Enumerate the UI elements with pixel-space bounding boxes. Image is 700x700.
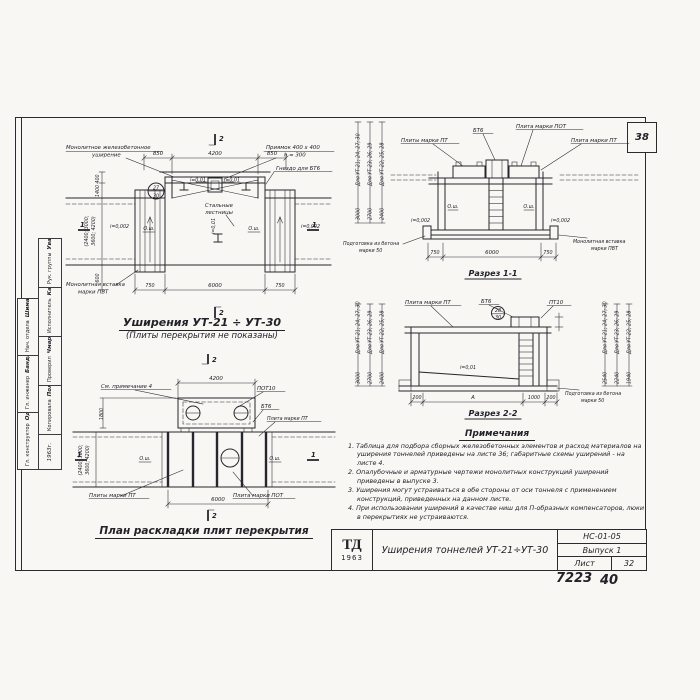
- plan-dim-left-4: 3600; 4200): [91, 216, 97, 246]
- s1-label-slope-left: i=0,002: [411, 218, 430, 224]
- lp-dim-left-mid-2: 3600; 4200): [85, 445, 91, 475]
- s2-leftdim-label-3: Для УТ-22; 25; 28: [380, 311, 386, 355]
- s1-label-pt-left: Плиты марки ПТ: [401, 138, 448, 144]
- lp-dim-left-top: 1800: [99, 408, 105, 420]
- note-item: 2. Опалубочные и арматурные чертежи моно…: [348, 468, 646, 485]
- s1-label-insert-2: марки ПВТ: [591, 246, 619, 252]
- s2-marker-top: 28: [495, 308, 501, 314]
- lp-label-pt: Плита марки ПТ: [267, 416, 309, 422]
- lp-label-bt6: БТ6: [261, 404, 272, 410]
- s2-leftdim-val-1: 3000: [356, 372, 362, 384]
- s1-label-bt6: БТ6: [473, 128, 484, 134]
- s2-title: Разрез 2-2: [469, 409, 518, 418]
- plan-marker-bottom: 30: [153, 194, 159, 200]
- lp-label-see-note: См. примечание 4: [101, 384, 153, 390]
- plan-dim-left-2: 1400: [95, 185, 101, 197]
- section2-texts: Для УТ-21; 24; 27; 30 Для УТ-23; 26; 29 …: [356, 299, 633, 418]
- plan-label-axis-right: О.ш.: [248, 226, 259, 232]
- title-block-right: НС-01-05 Выпуск 1 Лист 32: [558, 530, 646, 570]
- plan-label-ladders-2: лестницы: [204, 210, 234, 216]
- signature-year: 1963г.: [39, 435, 61, 469]
- plan-texts: 850 4200 850 750 6000 750 400 1400 (2400…: [66, 135, 321, 317]
- plan-dim-left-3: (2400; 3000;: [84, 215, 90, 246]
- s1-dim-bot-right: 750: [543, 250, 552, 256]
- signature-row: Проверил Чмарин: [39, 337, 61, 386]
- s2-leftdim-label-2: Для УТ-23; 26; 29: [368, 311, 374, 355]
- plan-label-socket: Гнездо для БТ6: [276, 166, 321, 172]
- s2-rightdim-label-2: Для УТ-23; 26; 29: [615, 311, 621, 355]
- plan-label-slope-pit-right: i=0,01: [224, 178, 240, 184]
- signature-strip-outer: Гл. конструктор Одобнистый Гл. инженер Б…: [17, 298, 39, 470]
- s2-rightdim-val-1: 2540: [603, 372, 609, 384]
- s2-rightdim-val-2: 2240: [615, 372, 621, 384]
- plan-drawing: 850 4200 850 750 6000 750 400 1400 (2400…: [66, 122, 338, 347]
- s2-label-bt6: БТ6: [481, 299, 492, 305]
- sheet-word: Лист: [558, 557, 612, 570]
- issue-label: Выпуск 1: [558, 544, 646, 558]
- plan-label-insert-2: марки ПВТ: [78, 290, 109, 296]
- lp-label-pt-plural: Плиты марки ПТ: [89, 493, 136, 499]
- s2-leftdim-val-3: 2400: [380, 372, 386, 384]
- layout-plan-drawing: 2 4200 См. примечание 4 ПОТ10 БТ6 Плита …: [63, 352, 345, 528]
- plan-title: Уширения УТ-21 ÷ УТ-30: [66, 316, 338, 329]
- plan-subtitle: (Плиты перекрытия не показаны): [66, 331, 338, 341]
- signature-row: Рук. группы Уваровский: [39, 239, 61, 288]
- s2-rightdim-label-1: Для УТ-21; 24; 27; 30: [603, 301, 609, 355]
- s1-label-prep-1: Подготовка из бетона: [343, 241, 399, 247]
- s2-rightdim-label-3: Для УТ-22; 25; 28: [627, 311, 633, 355]
- section-2-2-drawing: Для УТ-21; 24; 27; 30 Для УТ-23; 26; 29 …: [343, 296, 645, 424]
- plan-mark-1-left: 1: [80, 221, 85, 229]
- s2-dim-2: А: [470, 395, 475, 401]
- lp-label-axis-left: О.ш.: [139, 456, 150, 462]
- plan-label-monolithic-1: Монолитное железобетонное: [66, 145, 151, 151]
- signature-row: Исполнитель Каганюк: [39, 288, 61, 337]
- note-item: 1. Таблица для подбора сборных железобет…: [348, 442, 646, 467]
- layout-plan-title: План раскладки плит перекрытия: [63, 525, 345, 537]
- document-code: НС-01-05: [558, 530, 646, 544]
- s2-leftdim-label-1: Для УТ-21; 24; 27; 30: [356, 301, 362, 355]
- plan-mark-2-top: 2: [219, 135, 224, 143]
- plan-label-slope-left: i=0,002: [110, 224, 129, 230]
- s2-dim-3: 1000: [528, 395, 540, 401]
- sheet-row: Лист 32: [558, 557, 646, 570]
- plan-dim-bot-left: 750: [145, 283, 154, 289]
- signature-row: Нач. отдела Шиманвицкий: [18, 299, 38, 356]
- drawing-title: Уширения тоннелей УТ-21÷УТ-30: [373, 530, 558, 570]
- organization-logo: ТД 1963: [332, 530, 373, 570]
- s2-dim-1: 200: [412, 395, 421, 401]
- plan-label-pit-2: h = 300: [284, 153, 306, 159]
- s2-rightdim-val-3: 1940: [627, 372, 633, 384]
- s1-dim-bot-mid: 6000: [485, 250, 499, 256]
- lp-mark-bottom: 2: [212, 512, 217, 520]
- lp-dim-bottom: 6000: [211, 497, 225, 503]
- s1-label-insert-1: Монолитная вставка: [573, 239, 626, 245]
- s1-label-slope-right: i=0,002: [551, 218, 570, 224]
- s1-title: Разрез 1-1: [469, 269, 518, 278]
- plan-dim-left-1: 400: [95, 174, 101, 183]
- s1-leftdim-label-2: Для УТ-23; 26; 29: [368, 143, 374, 187]
- notes-block: Примечания 1. Таблица для подбора сборны…: [348, 429, 646, 522]
- plan-marker-top: 27: [153, 186, 159, 192]
- lp-label-pot10: ПОТ10: [257, 386, 276, 392]
- plan-label-slope-axis: i=0,01: [211, 218, 217, 234]
- lp-dim-left-mid-1: (2400; 3000;: [78, 444, 84, 475]
- lp-mark-1-left: 1: [77, 451, 82, 459]
- note-item: 3. Уширения могут устраиваться в обе сто…: [348, 486, 646, 503]
- s2-marker-bottom: 30: [495, 315, 501, 321]
- s2-label-prep-1: Подготовка из бетона: [565, 391, 621, 397]
- s2-dim-4: 200: [546, 395, 555, 401]
- sheet-number: 32: [612, 557, 646, 570]
- drawing-sheet: 38: [0, 0, 700, 700]
- notes-heading: Примечания: [348, 429, 646, 439]
- section-1-1-drawing: Для УТ-21; 24; 27; 30 Для УТ-23; 26; 29 …: [343, 118, 645, 288]
- layout-texts: 2 4200 См. примечание 4 ПОТ10 БТ6 Плита …: [77, 356, 316, 520]
- plan-label-monolithic-2: уширение: [91, 153, 121, 159]
- s1-label-pt-right: Плита марки ПТ: [571, 138, 617, 144]
- plan-dim-top-right: 850: [267, 151, 278, 157]
- lp-dim-top: 4200: [209, 376, 223, 382]
- title-block: ТД 1963 Уширения тоннелей УТ-21÷УТ-30 НС…: [331, 529, 647, 571]
- s1-label-axis-right: О.ш.: [523, 204, 534, 210]
- plan-label-slope-right: i=0,002: [301, 224, 320, 230]
- s1-label-axis-left: О.ш.: [447, 204, 458, 210]
- lp-label-pot: Плита марки ПОТ: [233, 493, 284, 499]
- lp-mark-top: 2: [212, 356, 217, 364]
- plan-dim-top-mid: 4200: [208, 151, 222, 157]
- plan-label-axis-left: О.ш.: [143, 226, 154, 232]
- signature-strip-inner: 1963г. Копировала Полякова Проверил Чмар…: [38, 238, 62, 470]
- s1-dim-bot-left: 750: [430, 250, 439, 256]
- note-item: 4. При использовании уширений в качестве…: [348, 504, 646, 521]
- section1-texts: Для УТ-21; 24; 27; 30 Для УТ-23; 26; 29 …: [343, 124, 626, 278]
- s2-label-prep-2: марки 50: [581, 398, 604, 404]
- plan-dim-bot-mid: 6000: [208, 283, 222, 289]
- s1-label-prep-2: марки 50: [359, 248, 382, 254]
- s2-leftdim-val-2: 2700: [368, 372, 374, 384]
- plan-label-insert-1: Монолитная вставка: [66, 282, 125, 288]
- page-number-handwritten: 40: [600, 573, 618, 588]
- lp-label-axis-right: О.ш.: [269, 456, 280, 462]
- plan-label-ladders-1: Стальные: [205, 203, 234, 209]
- plan-dim-bot-right: 750: [275, 283, 284, 289]
- logo-year: 1963: [341, 554, 363, 562]
- s1-leftdim-label-1: Для УТ-21; 24; 27; 30: [356, 133, 362, 187]
- s2-label-pt10: ПТ10: [549, 300, 564, 306]
- logo-text: ТД: [342, 538, 361, 553]
- s2-label-pt: Плита марки ПТ: [405, 300, 451, 306]
- signature-row: Копировала Полякова: [39, 386, 61, 435]
- s1-label-pot: Плита марки ПОТ: [516, 124, 567, 130]
- s1-leftdim-val-1: 3000: [356, 208, 362, 220]
- signature-row: Гл. инженер Бандюк: [18, 356, 38, 413]
- plan-dim-top-left: 850: [153, 151, 164, 157]
- plan-label-slope-pit-left: i=0,01: [190, 178, 206, 184]
- s1-leftdim-label-3: Для УТ-22; 25; 28: [380, 143, 386, 187]
- s2-label-slope: i=0,01: [460, 365, 476, 371]
- lp-mark-1-right: 1: [311, 451, 316, 459]
- inventory-number: 7223: [556, 571, 592, 586]
- signature-row: Гл. конструктор Одобнистый: [18, 413, 38, 469]
- s1-leftdim-val-3: 2400: [380, 208, 386, 220]
- s1-leftdim-val-2: 2700: [368, 208, 374, 220]
- plan-label-pit-1: Приямок 400 x 400: [266, 145, 320, 151]
